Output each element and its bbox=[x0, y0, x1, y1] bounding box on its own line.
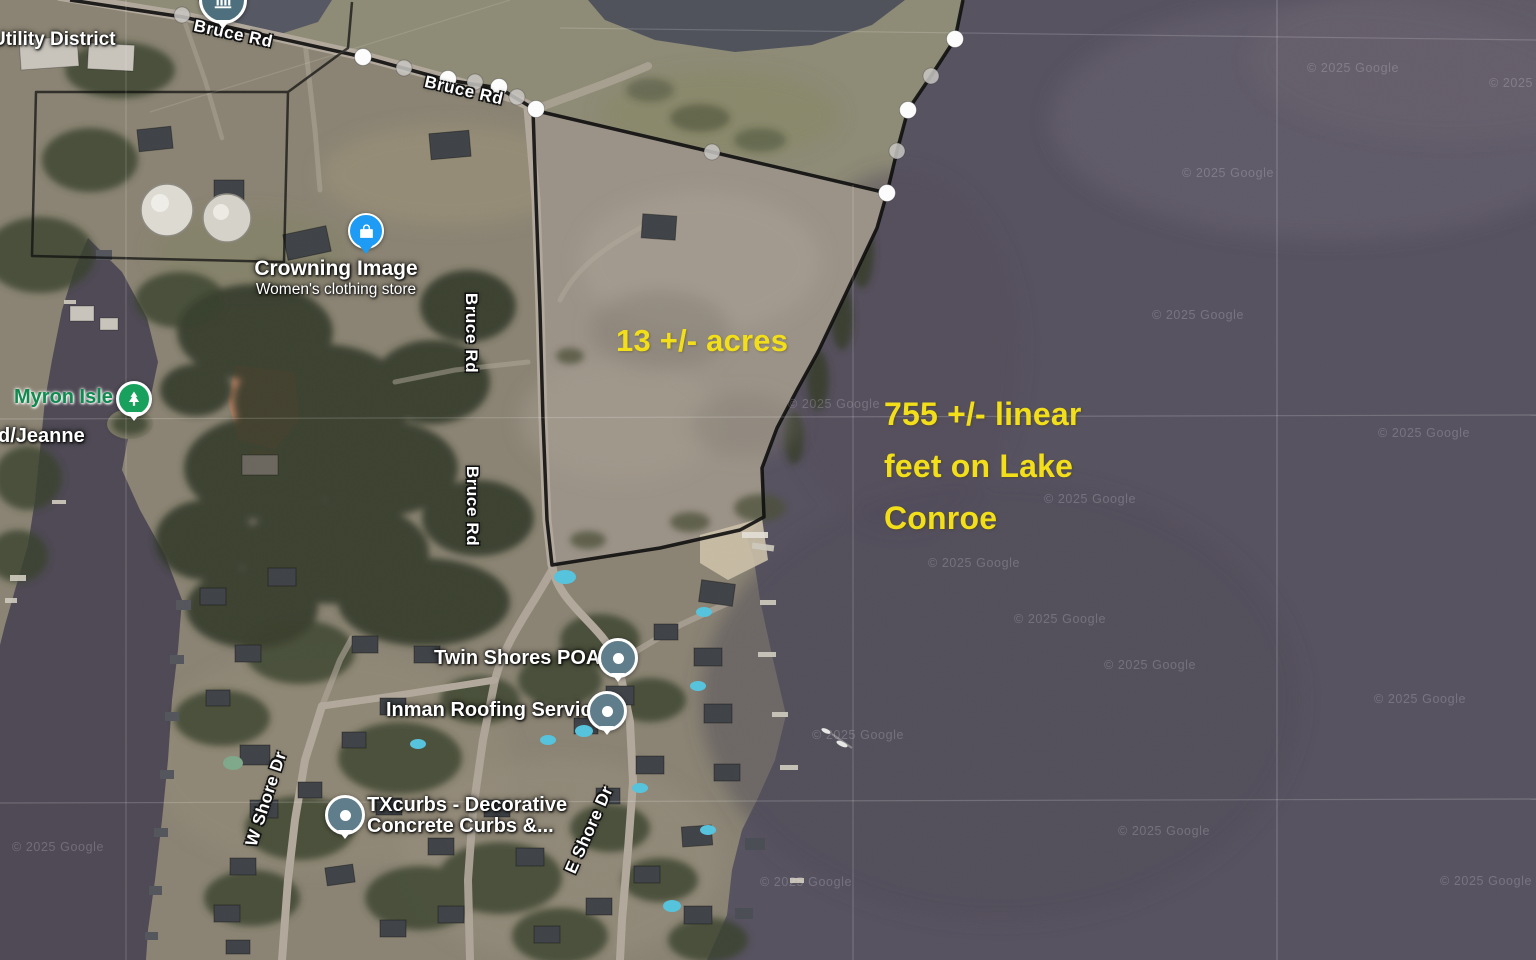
satellite-imagery[interactable] bbox=[0, 0, 1536, 960]
attribution-watermark: © 2025 Google bbox=[1152, 308, 1244, 322]
txcurbs-label-line1[interactable]: TXcurbs - Decorative bbox=[367, 795, 567, 816]
pin-tip bbox=[127, 412, 141, 421]
waterfront-line-1: 755 +/- linear bbox=[884, 388, 1082, 440]
poi-dot-icon bbox=[587, 691, 627, 731]
utility-district-pin[interactable] bbox=[199, 0, 247, 24]
twin-shores-poa-label[interactable]: Twin Shores POA bbox=[434, 647, 600, 670]
poi-dot-icon bbox=[598, 638, 638, 678]
attribution-watermark: © 2025 Google bbox=[1014, 612, 1106, 626]
twin-shores-poa-pin[interactable] bbox=[598, 638, 638, 678]
bruce-rd-label: Bruce Rd bbox=[461, 278, 481, 388]
attribution-watermark: © 2025 Google bbox=[1440, 874, 1532, 888]
crowning-image-label[interactable]: Crowning Image Women's clothing store bbox=[246, 257, 426, 299]
pin-tip bbox=[216, 20, 230, 29]
satellite-map-view: © 2025 Google © 2025 Google © 2025 Googl… bbox=[0, 0, 1536, 960]
attribution-watermark: © 2025 Google bbox=[760, 875, 852, 889]
poi-dot-icon bbox=[325, 795, 365, 835]
pin-tip bbox=[359, 245, 373, 254]
attribution-watermark: © 2025 Google bbox=[812, 728, 904, 742]
txcurbs-label-line2: Concrete Curbs &... bbox=[367, 816, 567, 837]
crowning-image-pin[interactable] bbox=[348, 213, 384, 249]
attribution-watermark: © 2025 Google bbox=[1182, 166, 1274, 180]
shopping-bag-icon bbox=[348, 213, 384, 249]
attribution-watermark: © 2025 Google bbox=[1118, 824, 1210, 838]
attribution-watermark: © 2025 Google bbox=[12, 840, 104, 854]
txcurbs-label[interactable]: TXcurbs - Decorative Concrete Curbs &... bbox=[367, 795, 567, 837]
waterfront-line-3: Conroe bbox=[884, 492, 1082, 544]
txcurbs-pin[interactable] bbox=[325, 795, 365, 835]
myron-isle-pin[interactable] bbox=[116, 381, 152, 417]
attribution-watermark: © 2025 Google bbox=[1378, 426, 1470, 440]
jeanne-label: d/Jeanne bbox=[0, 425, 85, 448]
crowning-image-subtitle: Women's clothing store bbox=[246, 281, 426, 299]
attribution-watermark: © 2025 Google bbox=[928, 556, 1020, 570]
attribution-watermark: © 2025 Google bbox=[788, 397, 880, 411]
myron-isle-label[interactable]: Myron Isle bbox=[14, 386, 113, 409]
waterfront-annotation: 755 +/- linear feet on Lake Conroe bbox=[884, 388, 1082, 544]
inman-roofing-label[interactable]: Inman Roofing Services bbox=[386, 699, 614, 722]
inman-roofing-pin[interactable] bbox=[587, 691, 627, 731]
waterfront-line-2: feet on Lake bbox=[884, 440, 1082, 492]
utility-district-label: Utility District bbox=[0, 29, 116, 51]
crowning-image-title[interactable]: Crowning Image bbox=[246, 257, 426, 281]
pin-tip bbox=[338, 830, 352, 839]
attribution-watermark: © 2025 Google bbox=[1307, 61, 1399, 75]
attribution-watermark: © 2025 Google bbox=[1489, 76, 1536, 90]
bruce-rd-label: Bruce Rd bbox=[462, 451, 482, 561]
pin-tip bbox=[611, 673, 625, 682]
attribution-watermark: © 2025 Google bbox=[1104, 658, 1196, 672]
pin-tip bbox=[600, 726, 614, 735]
acreage-annotation: 13 +/- acres bbox=[616, 323, 788, 359]
attribution-watermark: © 2025 Google bbox=[1374, 692, 1466, 706]
